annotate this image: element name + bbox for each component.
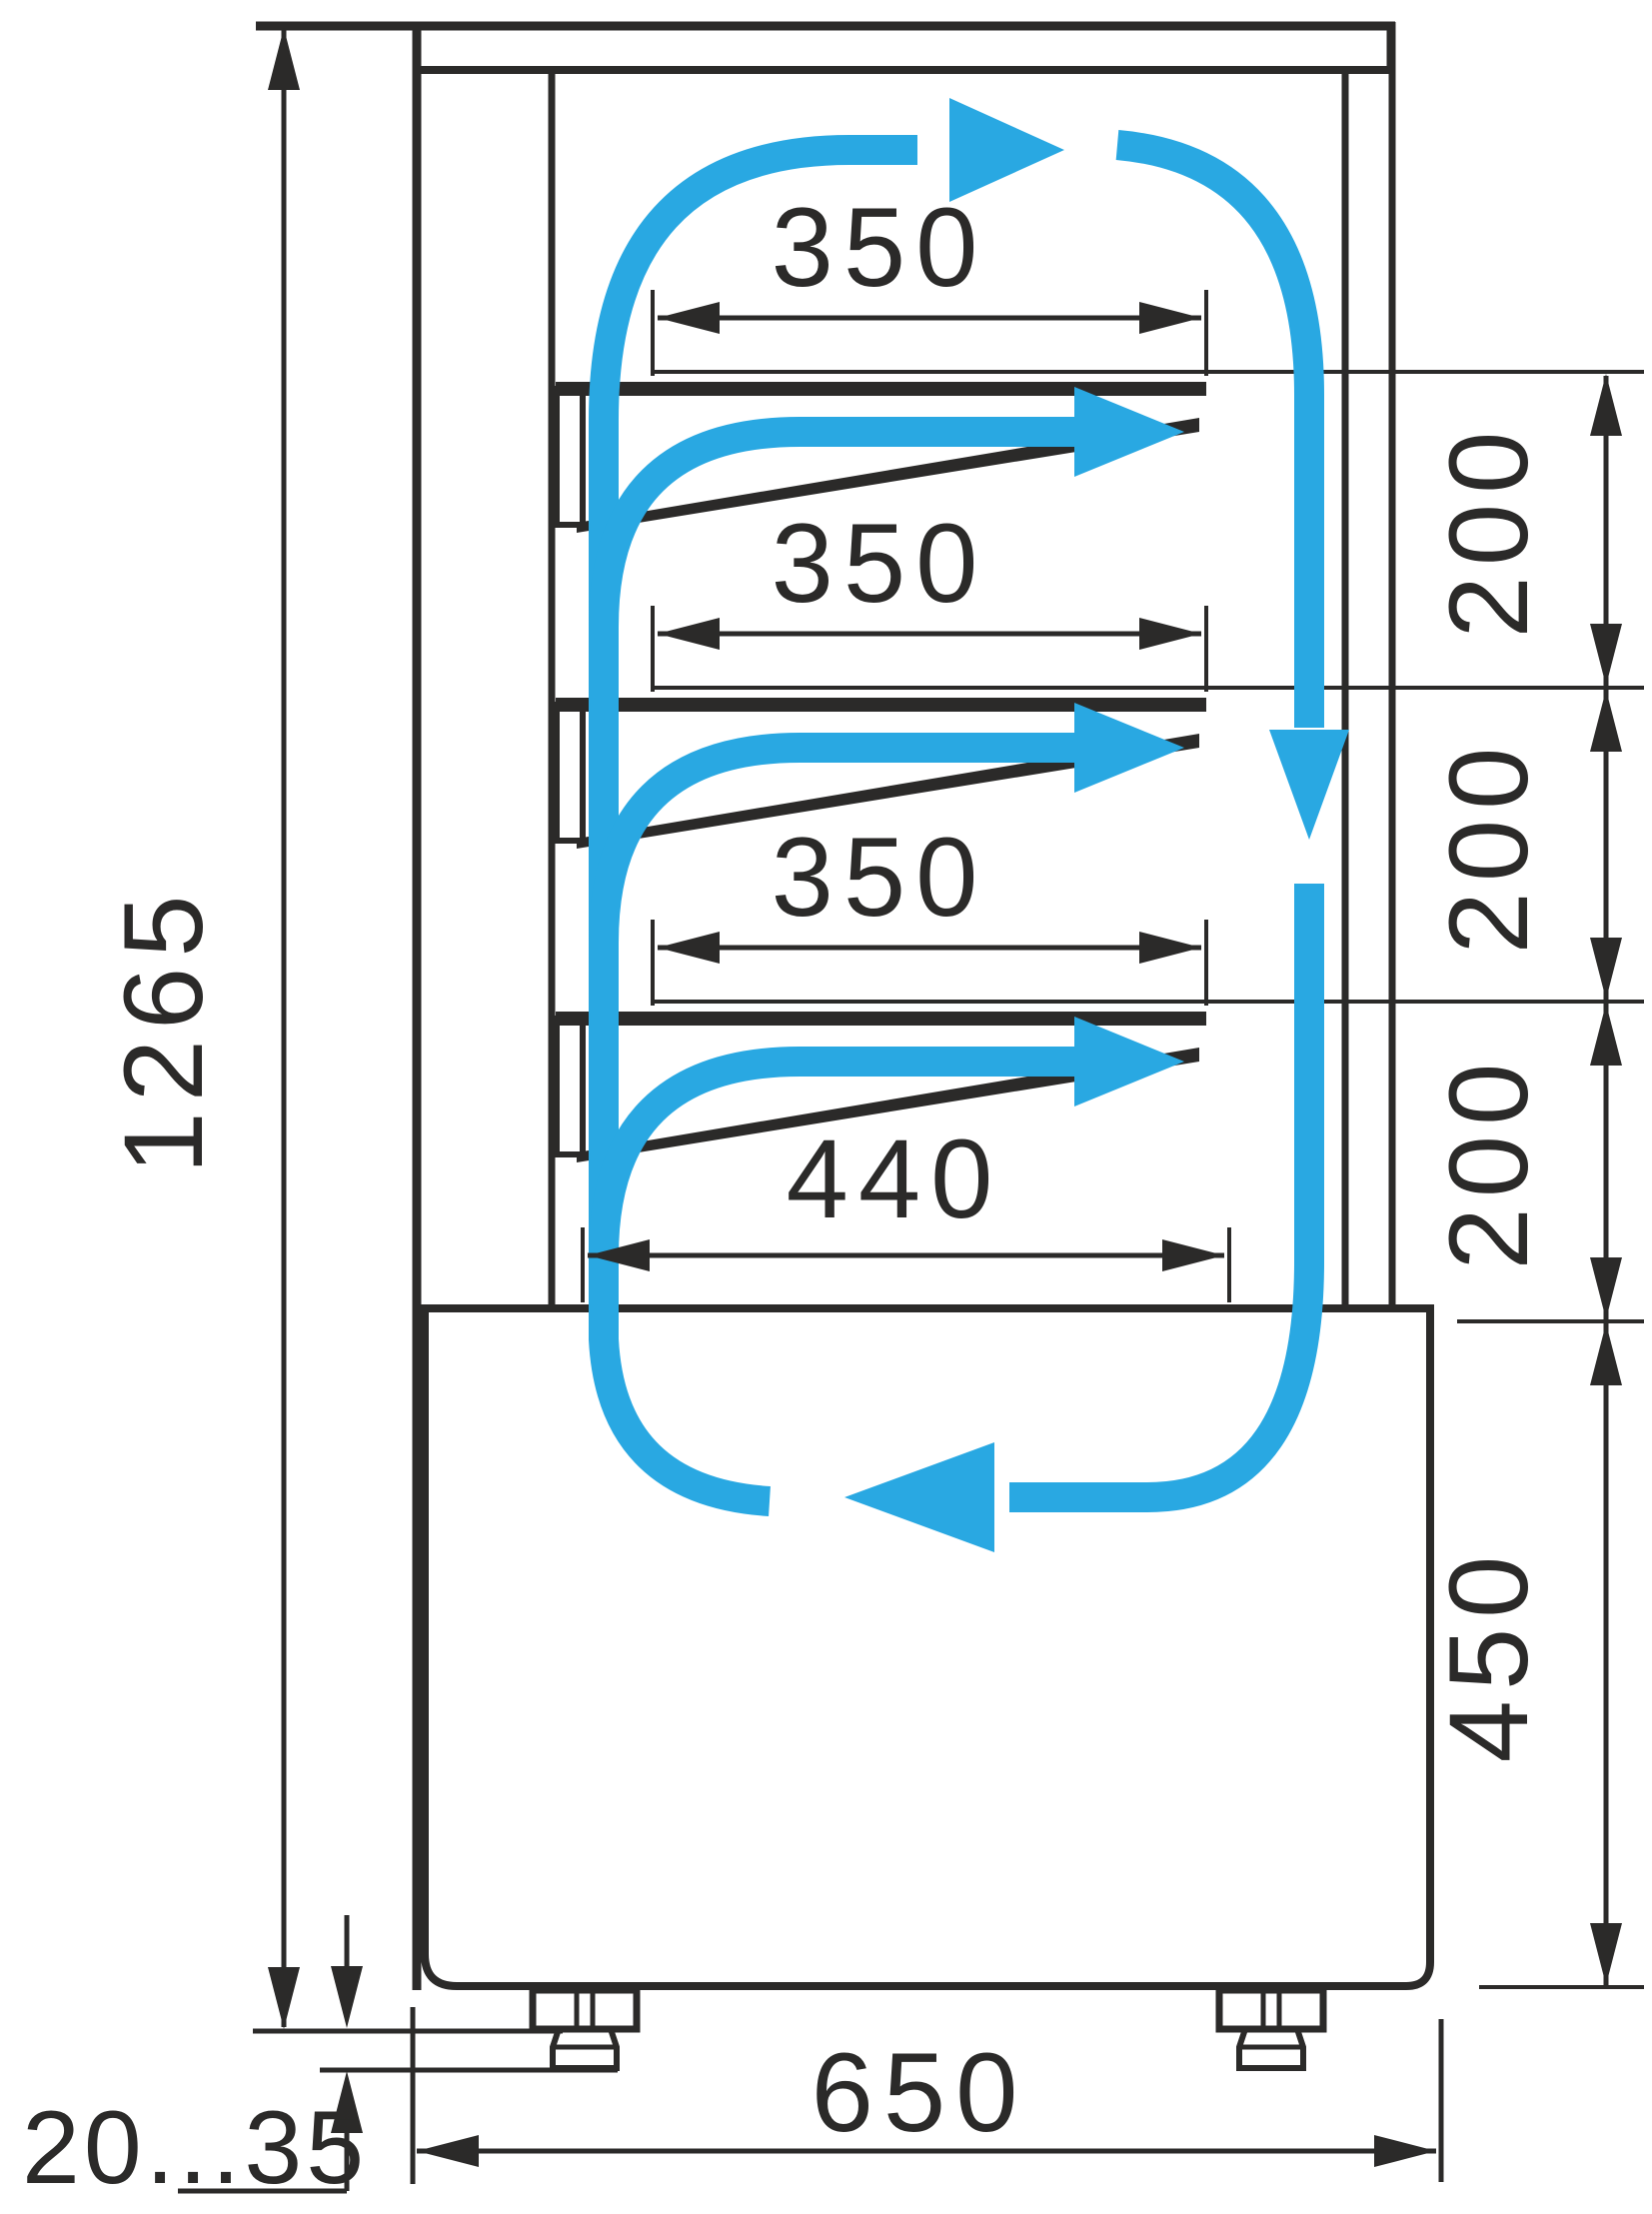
dimensions xyxy=(178,28,1644,2191)
airflow-branch-3-arrow-icon xyxy=(1074,1017,1184,1107)
arrow-down-icon xyxy=(1590,624,1622,686)
arrow-up-icon xyxy=(1590,1323,1622,1385)
arrow-right-icon xyxy=(1162,1239,1224,1271)
airflow-branch-1-arrow-icon xyxy=(1074,387,1184,477)
left-foot-screw xyxy=(577,1990,593,2029)
label-base-width: 650 xyxy=(812,2030,1028,2155)
dim-overall-height xyxy=(268,28,300,2029)
label-shelf-3-width: 350 xyxy=(772,815,988,940)
arrow-down-icon xyxy=(268,1967,300,2029)
label-spacing-2: 200 xyxy=(1426,738,1551,955)
arrow-down-icon xyxy=(1590,1257,1622,1319)
airflow-bottom-curve-path xyxy=(1009,884,1309,1497)
arrow-left-icon xyxy=(658,932,720,964)
arrow-right-icon xyxy=(1374,2135,1436,2167)
right-foot-housing xyxy=(1219,1990,1323,2029)
label-overall-height: 1265 xyxy=(101,885,226,1173)
arrow-up-icon xyxy=(268,28,300,90)
label-spacing-1: 200 xyxy=(1426,422,1551,639)
arrow-down-icon xyxy=(1590,938,1622,1000)
diagram-stage: 350 350 350 440 200 200 200 450 1265 650… xyxy=(0,0,1652,2214)
airflow-branch-2-arrow-icon xyxy=(1074,703,1184,793)
shelf-3-bracket xyxy=(557,1019,583,1154)
arrow-left-icon xyxy=(417,2135,479,2167)
shelf-2-bracket xyxy=(557,705,583,841)
arrow-right-icon xyxy=(1139,302,1201,334)
arrow-up-icon xyxy=(1590,1004,1622,1066)
arrow-right-icon xyxy=(1139,932,1201,964)
arrow-up-icon xyxy=(1590,690,1622,752)
airflow-return-arrow-icon xyxy=(844,1442,994,1552)
arrow-down-icon xyxy=(331,1966,363,2028)
right-foot-screw xyxy=(1263,1990,1279,2029)
airflow-down-arrow-icon xyxy=(1269,730,1349,840)
right-foot xyxy=(1219,1990,1323,2068)
arrow-right-icon xyxy=(1139,618,1201,650)
display-case-section-diagram: 350 350 350 440 200 200 200 450 1265 650… xyxy=(0,0,1652,2214)
label-bottom-shelf-width: 440 xyxy=(787,1116,1003,1241)
label-spacing-3: 200 xyxy=(1426,1054,1551,1270)
label-base-section-height: 450 xyxy=(1426,1546,1551,1763)
label-shelf-2-width: 350 xyxy=(772,501,988,626)
left-foot-housing xyxy=(533,1990,637,2029)
arrow-left-icon xyxy=(658,618,720,650)
label-foot-adjustment: 20...35 xyxy=(22,2090,368,2206)
label-shelf-1-width: 350 xyxy=(772,185,988,310)
arrow-up-icon xyxy=(1590,374,1622,436)
arrow-left-icon xyxy=(658,302,720,334)
shelf-1-bracket xyxy=(557,389,583,525)
arrow-down-icon xyxy=(1590,1923,1622,1985)
